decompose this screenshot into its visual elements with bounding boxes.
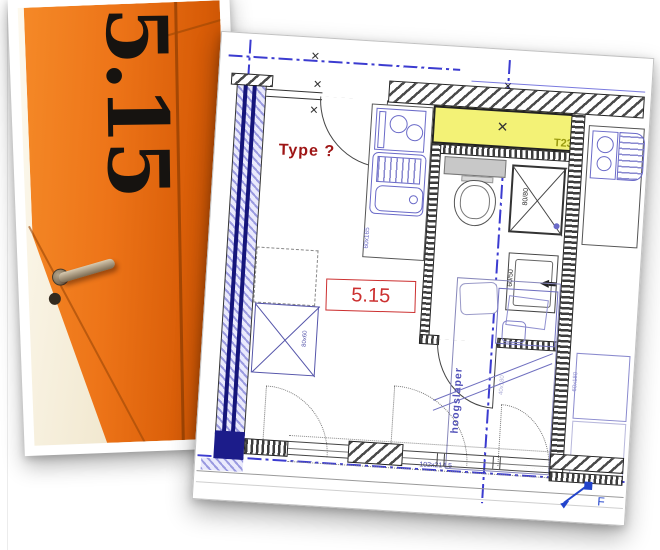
wall-footer-block	[213, 430, 245, 460]
centerline-horizontal-top	[229, 54, 461, 71]
section-marker: F	[554, 476, 616, 520]
shower-size-label: 80/80	[522, 188, 530, 206]
dashed-outline-box	[253, 246, 318, 306]
type-question-label: Type ?	[279, 142, 336, 162]
floor-plan-drawing: ✕ ✕ ✕ ✕ Type ? T23 ✕ 60x165	[195, 34, 651, 523]
lock-cylinder-icon	[49, 293, 61, 305]
marker-f-label: F	[597, 494, 605, 508]
slide-canvas: { "slide": { "background": "#ffffff" }, …	[0, 0, 660, 550]
drainer-icon	[376, 156, 422, 185]
slide-edge-line	[7, 0, 8, 550]
door-handle	[54, 263, 126, 310]
toilet-bowl-icon	[452, 179, 497, 228]
chair-icon	[501, 320, 526, 343]
sink-icon	[369, 152, 427, 217]
break-mark: ✕	[313, 78, 323, 92]
stove-panel	[377, 111, 386, 148]
wardrobe-size-label: 80x60	[302, 330, 309, 347]
floor-plan: ✕ ✕ ✕ ✕ Type ? T23 ✕ 60x165	[192, 31, 655, 526]
bottom-pier-hatch	[347, 441, 403, 466]
frame-mid-line	[288, 448, 348, 453]
center-mark: ✕	[496, 119, 509, 136]
door-number-stencil: 5.15	[93, 6, 179, 196]
pillow-icon	[459, 282, 498, 316]
burner-icon	[406, 124, 424, 142]
stove-icon	[374, 108, 427, 153]
toilet-cistern-icon	[444, 156, 507, 178]
kitchen-unit: 60x165	[362, 103, 434, 261]
break-mark: ✕	[309, 104, 319, 118]
window-frame	[288, 441, 349, 459]
bed-inner-size-label: 40x180	[499, 375, 506, 395]
neighbor-kitchen-unit	[581, 125, 644, 248]
room-number-label: 5.15	[325, 279, 416, 314]
wall-cap	[231, 73, 274, 88]
table-size-label: 60x180	[572, 372, 579, 392]
kitchen-size-label: 60x165	[363, 227, 371, 249]
room-number-text: 5.15	[351, 284, 391, 308]
neighbor-stove-icon	[590, 130, 619, 180]
bottom-wall-checker	[244, 438, 289, 457]
mullion	[436, 453, 445, 465]
mullion	[492, 457, 501, 469]
break-mark: ✕	[310, 50, 320, 64]
neighbor-table	[572, 353, 630, 422]
toilet-seat-line	[459, 184, 491, 220]
burner-icon	[596, 156, 612, 172]
neighbor-sink-icon	[617, 132, 646, 182]
burner-icon	[596, 136, 614, 154]
